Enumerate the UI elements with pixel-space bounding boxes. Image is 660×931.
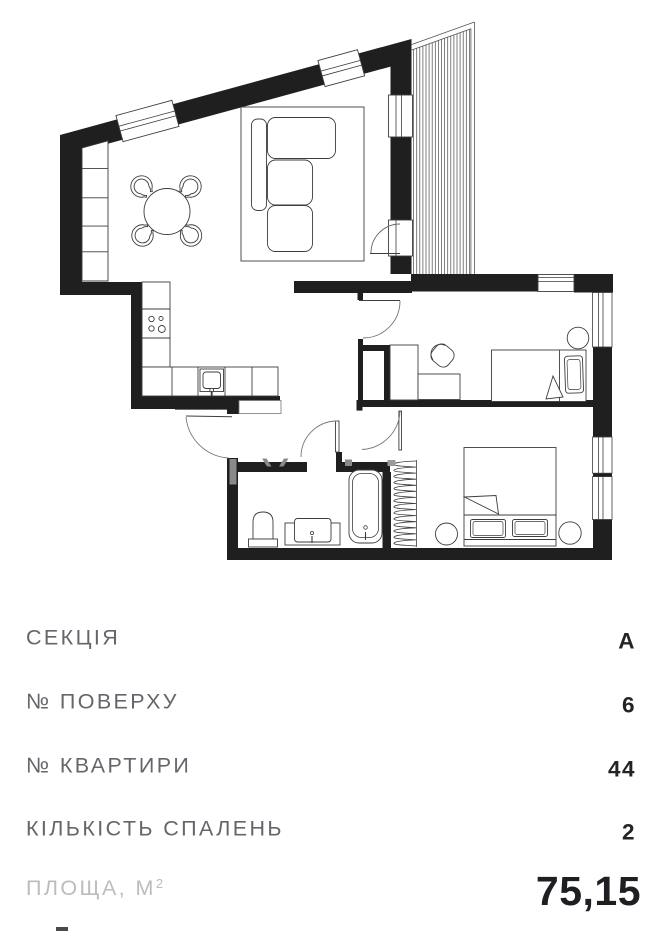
svg-text:СЕКЦІЯ: СЕКЦІЯ — [26, 626, 120, 650]
svg-text:КІЛЬКІСТЬ СПАЛЕНЬ: КІЛЬКІСТЬ СПАЛЕНЬ — [26, 817, 284, 841]
svg-text:А: А — [618, 629, 636, 654]
svg-text:44: 44 — [608, 757, 636, 782]
svg-text:№ КВАРТИРИ: № КВАРТИРИ — [26, 754, 191, 778]
svg-text:№ ПОВЕРХУ: № ПОВЕРХУ — [26, 690, 179, 714]
svg-text:6: 6 — [622, 693, 636, 718]
svg-text:2: 2 — [622, 820, 636, 845]
svg-text:75,15: 75,15 — [536, 868, 641, 914]
svg-text:ПЛОЩА, М2: ПЛОЩА, М2 — [26, 876, 165, 901]
